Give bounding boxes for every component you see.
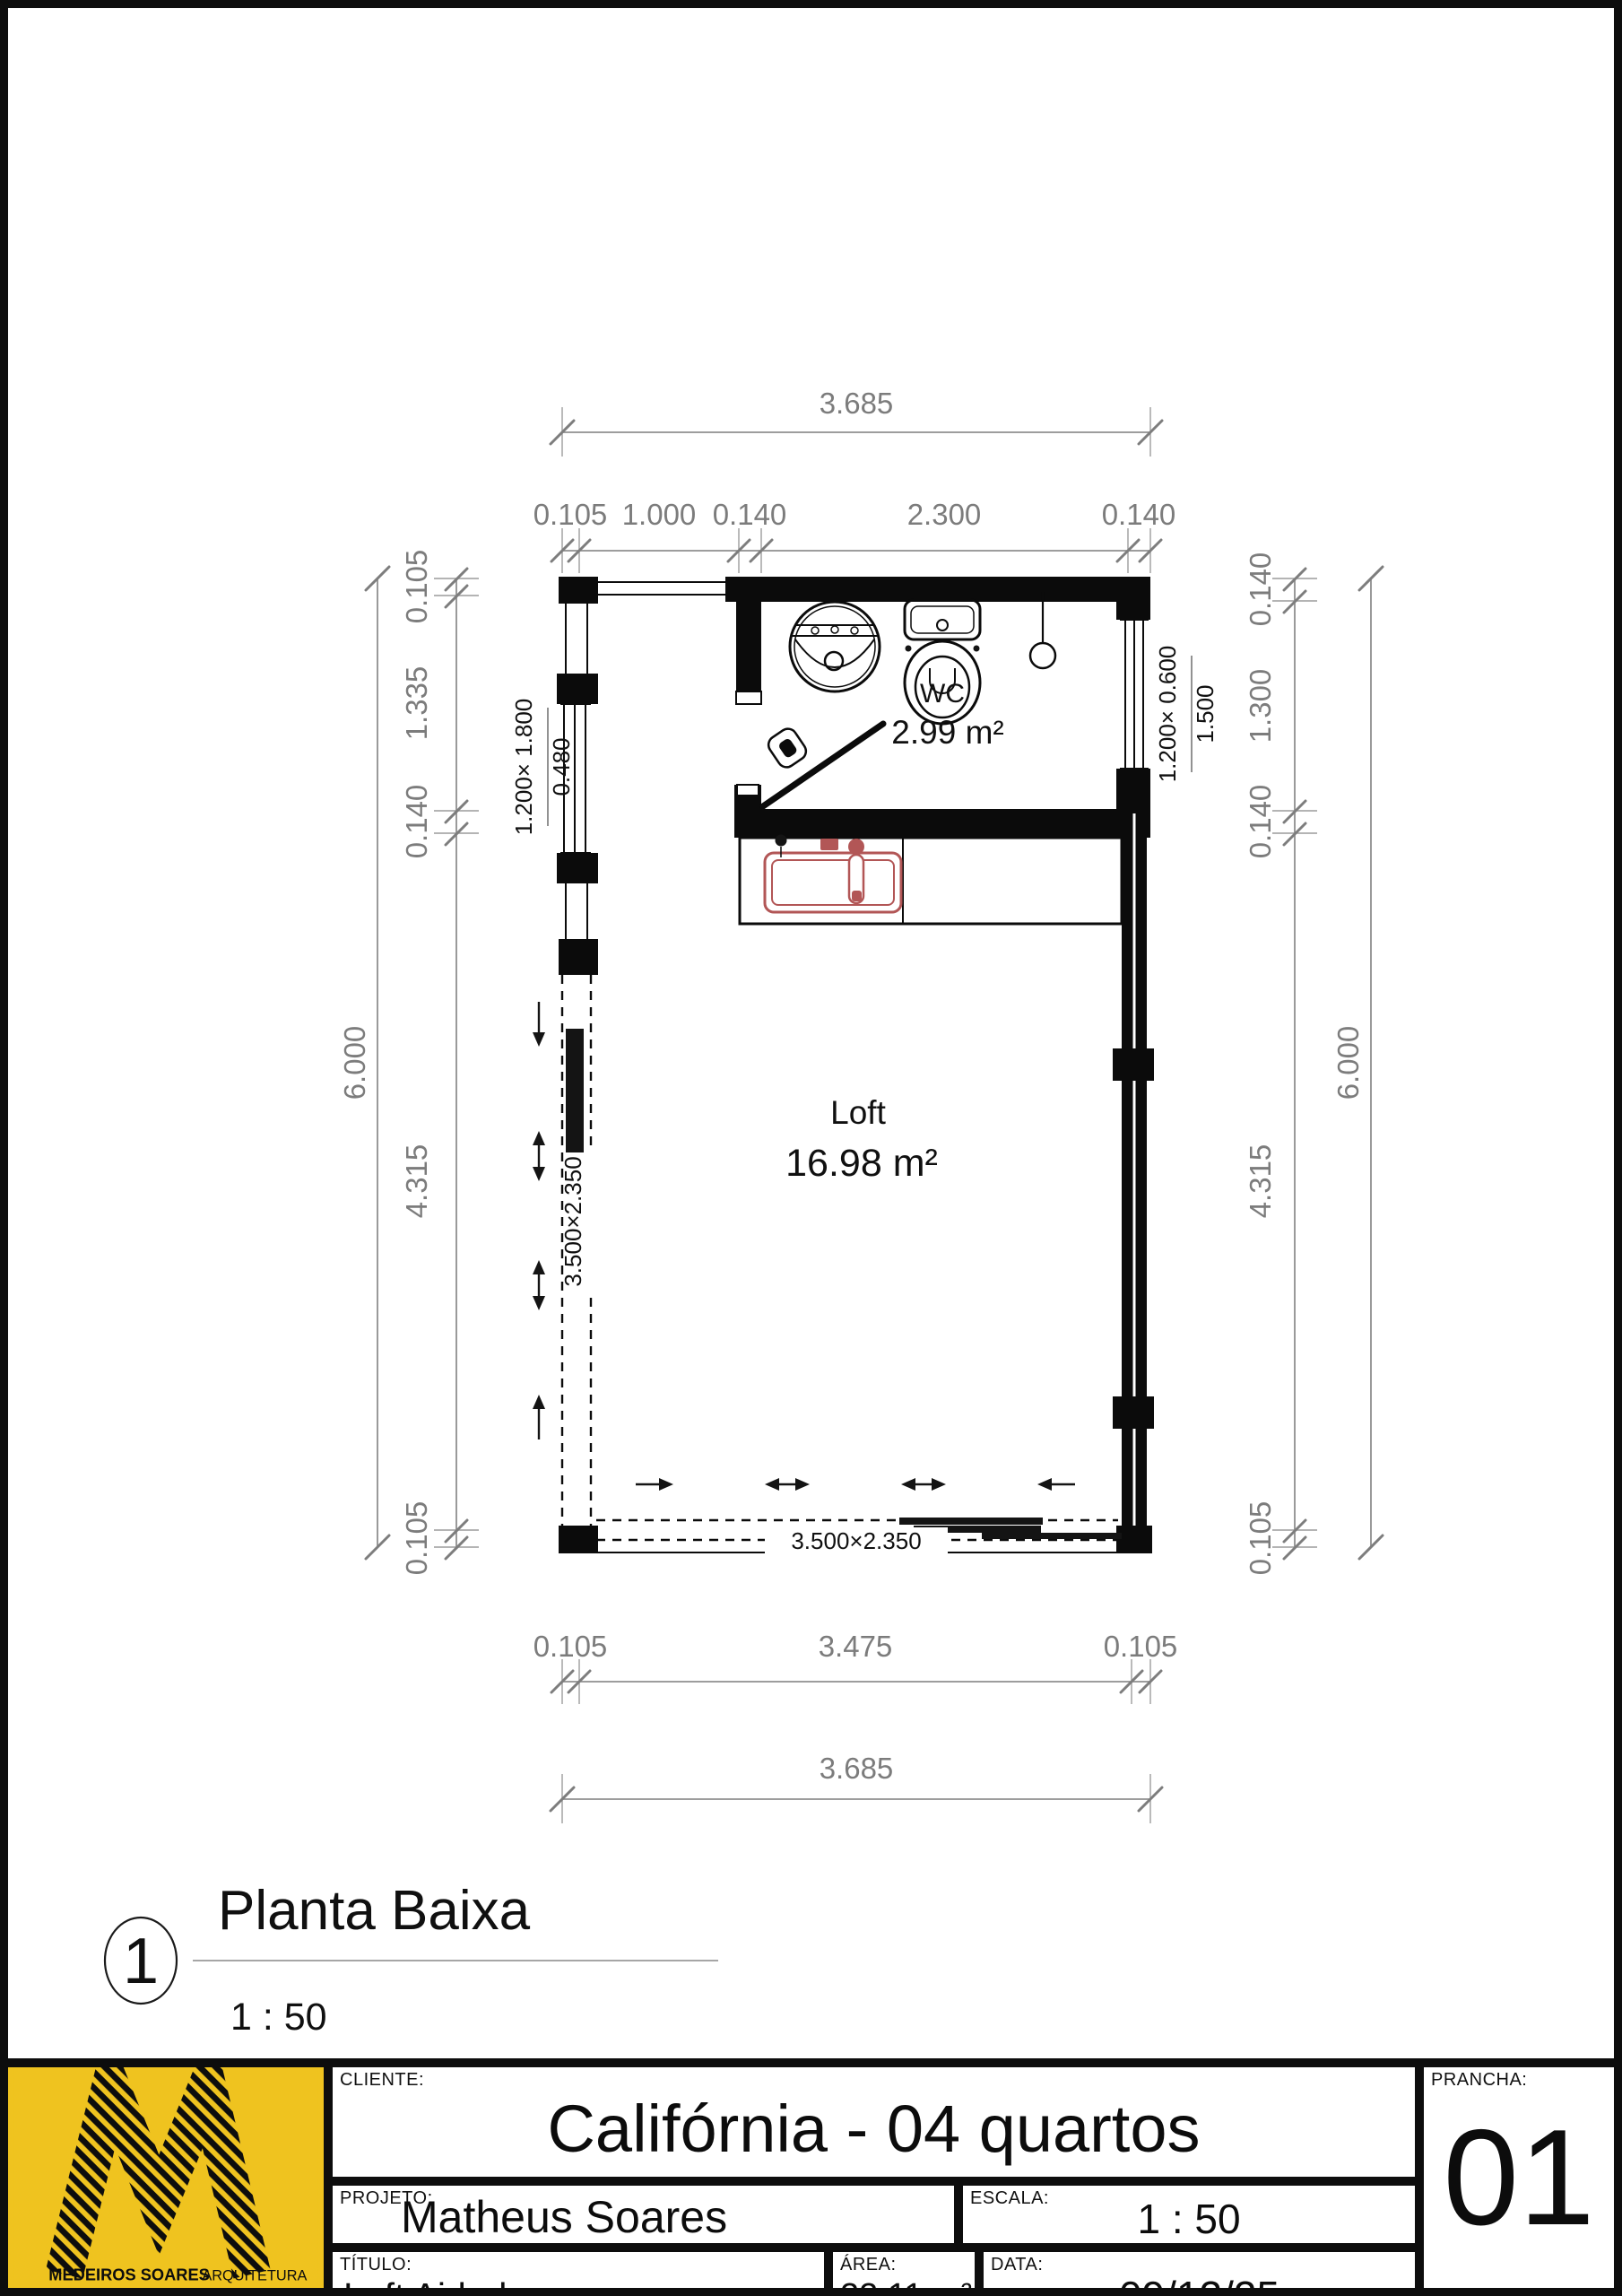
titulo-label: TÍTULO: — [340, 2255, 412, 2275]
right-window-size: 1.200× 0.600 — [1154, 646, 1181, 783]
bathroom-partition-wall — [736, 602, 761, 693]
view-title-text: Planta Baixa — [218, 1880, 531, 1942]
drawing-sheet: 3.685 0.105 1.000 0.140 2.300 0.140 0.10… — [0, 0, 1622, 2296]
walls — [557, 577, 1154, 1552]
left-wall-post — [559, 939, 598, 975]
prancha-label: PRANCHA: — [1431, 2070, 1527, 2091]
dim-top-1: 1.000 — [622, 498, 697, 531]
dim-right-1: 1.300 — [1244, 669, 1277, 744]
view-title: 1 Planta Baixa 1 : 50 — [105, 1880, 718, 2039]
dim-right-0: 0.140 — [1244, 552, 1277, 627]
escala-cell: ESCALA: 1 : 50 — [954, 2186, 1415, 2243]
room-labels: WC 2.99 m² Loft 16.98 m² — [785, 679, 1004, 1185]
logo-field: ARQUITETURA — [202, 2267, 307, 2283]
washbasin — [790, 602, 880, 691]
wc-label: WC — [920, 679, 965, 709]
cliente-cell: CLIENTE: Califórnia - 04 quartos — [333, 2067, 1415, 2177]
dim-right-3: 4.315 — [1244, 1144, 1277, 1219]
titulo-cell: TÍTULO: Loft Airbnb — [333, 2252, 824, 2288]
dim-right-overall: 6.000 — [1331, 1026, 1365, 1100]
sliding-doors: 3.500×2.350 3.500×2.350 — [559, 975, 1122, 1554]
right-wall-post — [1113, 1396, 1154, 1429]
slide-direction-arrows — [533, 1002, 1075, 1491]
wc-area: 2.99 m² — [891, 714, 1003, 751]
sliding-panel — [982, 1533, 1122, 1539]
dim-top-0: 0.105 — [533, 498, 608, 531]
dim-left-1: 1.335 — [400, 666, 433, 741]
right-wall-post — [1113, 1048, 1154, 1081]
top-right-column — [1116, 577, 1150, 620]
bottom-left-column — [559, 1526, 598, 1552]
dim-right-4: 0.105 — [1244, 1501, 1277, 1576]
area-cell: ÁREA: 22,11 m² — [824, 2252, 975, 2288]
loft-label: Loft — [830, 1094, 886, 1131]
dim-bottom-1: 3.475 — [819, 1630, 893, 1663]
projeto-cell: PROJETO: Matheus Soares — [333, 2186, 954, 2243]
dim-top-2: 0.140 — [713, 498, 787, 531]
floor-plan-drawing: 3.685 0.105 1.000 0.140 2.300 0.140 0.10… — [8, 8, 1614, 2288]
loft-area: 16.98 m² — [785, 1142, 938, 1185]
title-block-center: CLIENTE: Califórnia - 04 quartos PROJETO… — [333, 2067, 1415, 2288]
area-label: ÁREA: — [840, 2255, 897, 2275]
top-left-column — [559, 577, 598, 604]
dim-bottom-overall: 3.685 — [820, 1752, 894, 1785]
view-scale: 1 : 50 — [230, 1996, 327, 2039]
kitchen-counter — [740, 835, 1122, 925]
cliente-label: CLIENTE: — [340, 2070, 424, 2091]
data-cell: DATA: 09/12/25 — [975, 2252, 1415, 2288]
logo-name: MEDEIROS SOARES — [48, 2265, 209, 2283]
left-window-sill: 0.480 — [548, 737, 575, 796]
data-value: 09/12/25 — [984, 2272, 1415, 2296]
dim-top-4: 0.140 — [1102, 498, 1176, 531]
bathroom-door — [763, 724, 883, 806]
dim-bottom-0: 0.105 — [533, 1630, 608, 1663]
dim-left-0: 0.105 — [400, 550, 433, 624]
drain-knob — [776, 835, 787, 847]
dim-right-2: 0.140 — [1244, 785, 1277, 859]
area-value: 22,11 m² — [840, 2277, 972, 2296]
dim-left-overall: 6.000 — [338, 1026, 371, 1100]
bathroom-fixtures — [763, 582, 1055, 806]
dim-left-2: 0.140 — [400, 785, 433, 859]
company-logo: MEDEIROS SOARES ARQUITETURA — [8, 2067, 324, 2288]
bottom-sliding-door-label: 3.500×2.350 — [791, 1527, 921, 1554]
sliding-panel — [899, 1518, 1043, 1525]
prancha-value: 01 — [1424, 2100, 1614, 2257]
left-sliding-door-label: 3.500×2.350 — [559, 1156, 586, 1286]
titulo-value: Loft Airbnb — [343, 2275, 519, 2296]
dim-bottom-2: 0.105 — [1104, 1630, 1178, 1663]
escala-value: 1 : 50 — [963, 2195, 1415, 2243]
dim-left-4: 0.105 — [400, 1501, 433, 1576]
right-window-sill: 1.500 — [1192, 684, 1219, 743]
top-wall — [725, 577, 1150, 602]
dim-left-3: 4.315 — [400, 1144, 433, 1219]
title-block: MEDEIROS SOARES ARQUITETURA CLIENTE: Cal… — [8, 2058, 1614, 2288]
prancha-cell: PRANCHA: 01 — [1415, 2067, 1614, 2288]
logo-cell: MEDEIROS SOARES ARQUITETURA — [8, 2067, 333, 2288]
projeto-value: Matheus Soares — [401, 2191, 727, 2243]
view-number: 1 — [123, 1926, 159, 1997]
dim-top-overall: 3.685 — [820, 387, 894, 420]
dim-top-3: 2.300 — [907, 498, 982, 531]
internal-wall — [736, 809, 1150, 838]
left-window-size: 1.200× 1.800 — [510, 699, 537, 836]
cliente-value: Califórnia - 04 quartos — [333, 2091, 1415, 2167]
